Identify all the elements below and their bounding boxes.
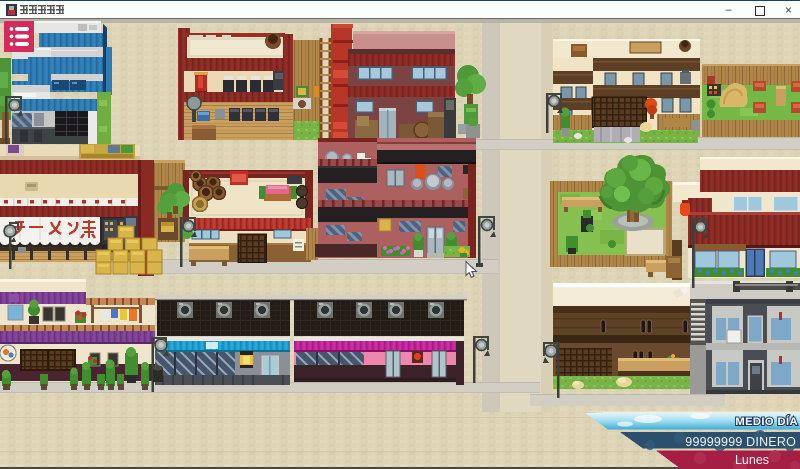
svg-text:MEDIO DÍA: MEDIO DÍA [735,415,798,428]
svg-text:99999999 DINERO: 99999999 DINERO [685,435,796,449]
svg-text:Lunes: Lunes [735,453,769,467]
